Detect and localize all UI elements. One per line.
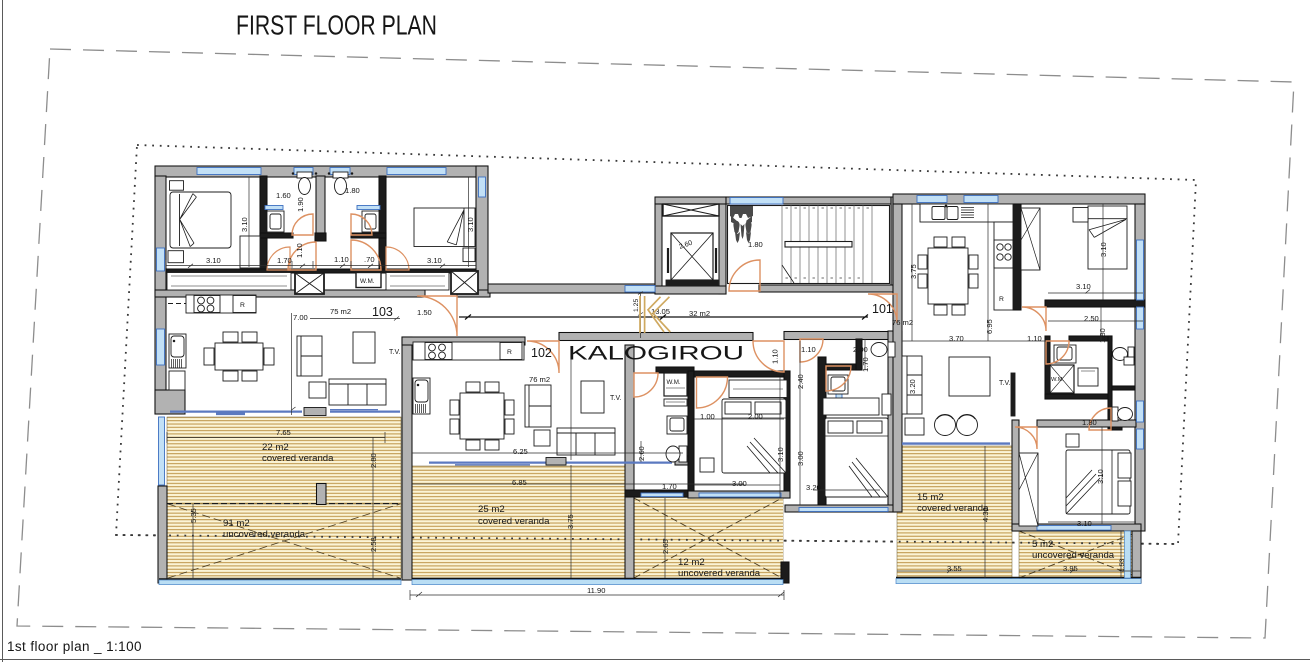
svg-text:3.10: 3.10	[1076, 282, 1091, 291]
svg-text:103: 103	[372, 305, 393, 319]
svg-text:R: R	[240, 302, 245, 309]
svg-text:91 m2: 91 m2	[223, 518, 250, 529]
svg-text:3.00: 3.00	[796, 451, 805, 466]
svg-text:1.90: 1.90	[296, 197, 305, 212]
svg-text:3.10: 3.10	[206, 256, 221, 265]
svg-text:covered veranda: covered veranda	[478, 516, 550, 527]
svg-text:1st floor plan _ 1:100: 1st floor plan _ 1:100	[7, 639, 142, 654]
svg-text:1.80: 1.80	[748, 240, 763, 249]
svg-text:7.00: 7.00	[293, 313, 308, 322]
svg-text:6.85: 6.85	[512, 478, 527, 487]
svg-text:11.90: 11.90	[587, 586, 605, 595]
svg-text:W.M.: W.M.	[1051, 377, 1065, 383]
svg-text:FIRST FLOOR PLAN: FIRST FLOOR PLAN	[236, 10, 437, 41]
svg-text:3.75: 3.75	[566, 514, 575, 529]
svg-text:2.58: 2.58	[369, 537, 378, 552]
svg-text:R: R	[507, 349, 512, 356]
svg-text:3.10: 3.10	[776, 447, 785, 462]
svg-text:22 m2: 22 m2	[262, 442, 289, 453]
svg-text:KALOGIROU: KALOGIROU	[568, 343, 744, 365]
svg-text:1.50: 1.50	[417, 308, 432, 317]
svg-text:3.10: 3.10	[1099, 242, 1108, 257]
svg-text:2.60: 2.60	[637, 446, 646, 461]
svg-text:2.40: 2.40	[796, 374, 805, 389]
svg-text:2.50: 2.50	[1084, 314, 1099, 323]
svg-text:76 m2: 76 m2	[892, 318, 913, 327]
svg-text:1.10: 1.10	[334, 255, 349, 264]
svg-text:1.00: 1.00	[700, 412, 715, 421]
svg-text:3.10: 3.10	[1096, 469, 1105, 484]
svg-text:R: R	[999, 296, 1004, 303]
svg-text:1.10: 1.10	[1027, 334, 1042, 343]
svg-text:1.25: 1.25	[633, 299, 640, 312]
svg-text:3.70: 3.70	[949, 334, 964, 343]
svg-text:covered veranda: covered veranda	[262, 453, 334, 464]
svg-text:6.95: 6.95	[985, 319, 994, 334]
svg-text:W.M.: W.M.	[360, 278, 375, 285]
svg-text:102: 102	[531, 346, 552, 360]
svg-text:2.00: 2.00	[853, 345, 868, 354]
svg-text:T.V.: T.V.	[999, 380, 1010, 387]
svg-text:1.70: 1.70	[861, 357, 870, 372]
svg-text:5 m2: 5 m2	[1032, 539, 1053, 550]
svg-text:2.80: 2.80	[369, 453, 378, 468]
svg-text:12 m2: 12 m2	[678, 557, 705, 568]
svg-text:1.10: 1.10	[771, 349, 780, 364]
svg-text:3.75: 3.75	[909, 264, 918, 279]
svg-text:1.10: 1.10	[295, 243, 304, 258]
svg-text:5.35: 5.35	[189, 508, 198, 523]
svg-text:15 m2: 15 m2	[917, 492, 944, 503]
svg-text:3.10: 3.10	[240, 217, 249, 232]
svg-text:6.25: 6.25	[513, 447, 528, 456]
svg-text:3.10: 3.10	[427, 256, 442, 265]
svg-text:1.80: 1.80	[345, 186, 360, 195]
svg-text:uncovered veranda: uncovered veranda	[223, 529, 306, 540]
svg-text:uncovered veranda: uncovered veranda	[678, 568, 761, 579]
svg-text:3.20: 3.20	[806, 483, 821, 492]
svg-text:1.80: 1.80	[1082, 418, 1097, 427]
svg-text:1.70: 1.70	[662, 482, 677, 491]
svg-text:1.70: 1.70	[277, 256, 292, 265]
svg-text:7.65: 7.65	[276, 428, 291, 437]
svg-text:3.10: 3.10	[466, 217, 475, 232]
svg-text:3.10: 3.10	[1077, 519, 1092, 528]
svg-text:3.20: 3.20	[908, 379, 917, 394]
svg-text:25 m2: 25 m2	[478, 504, 505, 515]
svg-text:1.53: 1.53	[1119, 559, 1126, 572]
svg-text:W.M.: W.M.	[667, 379, 681, 386]
svg-text:.70: .70	[364, 255, 375, 264]
svg-text:3.95: 3.95	[1063, 564, 1078, 573]
svg-text:75 m2: 75 m2	[330, 307, 351, 316]
svg-text:1.80: 1.80	[1098, 328, 1107, 343]
svg-text:2.00: 2.00	[748, 412, 763, 421]
svg-text:covered veranda: covered veranda	[917, 503, 989, 514]
svg-text:T.V.: T.V.	[389, 349, 400, 356]
svg-text:1.10: 1.10	[801, 345, 816, 354]
svg-text:32 m2: 32 m2	[689, 309, 710, 318]
svg-text:3.55: 3.55	[947, 564, 962, 573]
svg-text:3.00: 3.00	[732, 479, 747, 488]
svg-text:1.60: 1.60	[276, 191, 291, 200]
svg-text:uncovered veranda: uncovered veranda	[1032, 550, 1115, 561]
svg-text:76 m2: 76 m2	[529, 375, 550, 384]
svg-text:T.V.: T.V.	[610, 395, 621, 402]
svg-text:2.65: 2.65	[661, 539, 670, 554]
svg-text:101: 101	[872, 302, 893, 316]
